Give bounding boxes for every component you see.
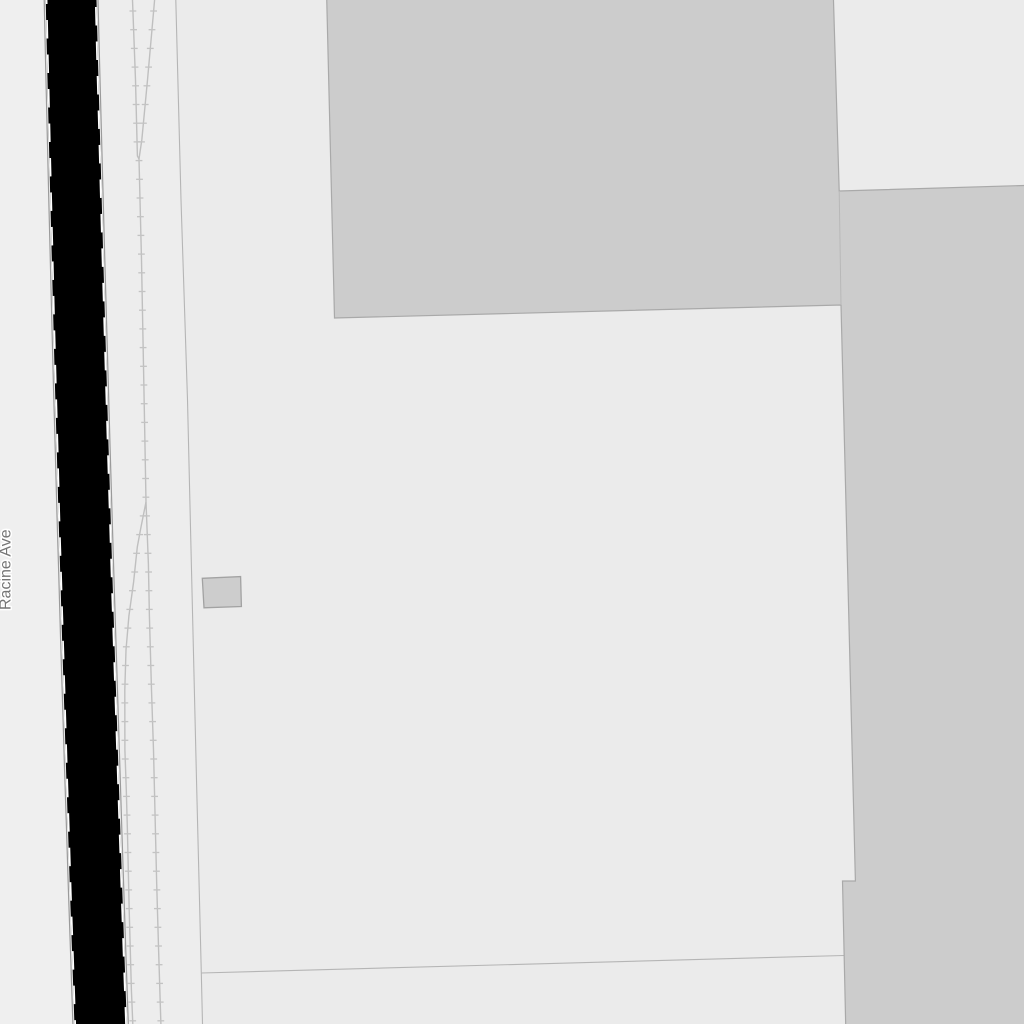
svg-text:Racine Ave: Racine Ave bbox=[0, 529, 15, 610]
